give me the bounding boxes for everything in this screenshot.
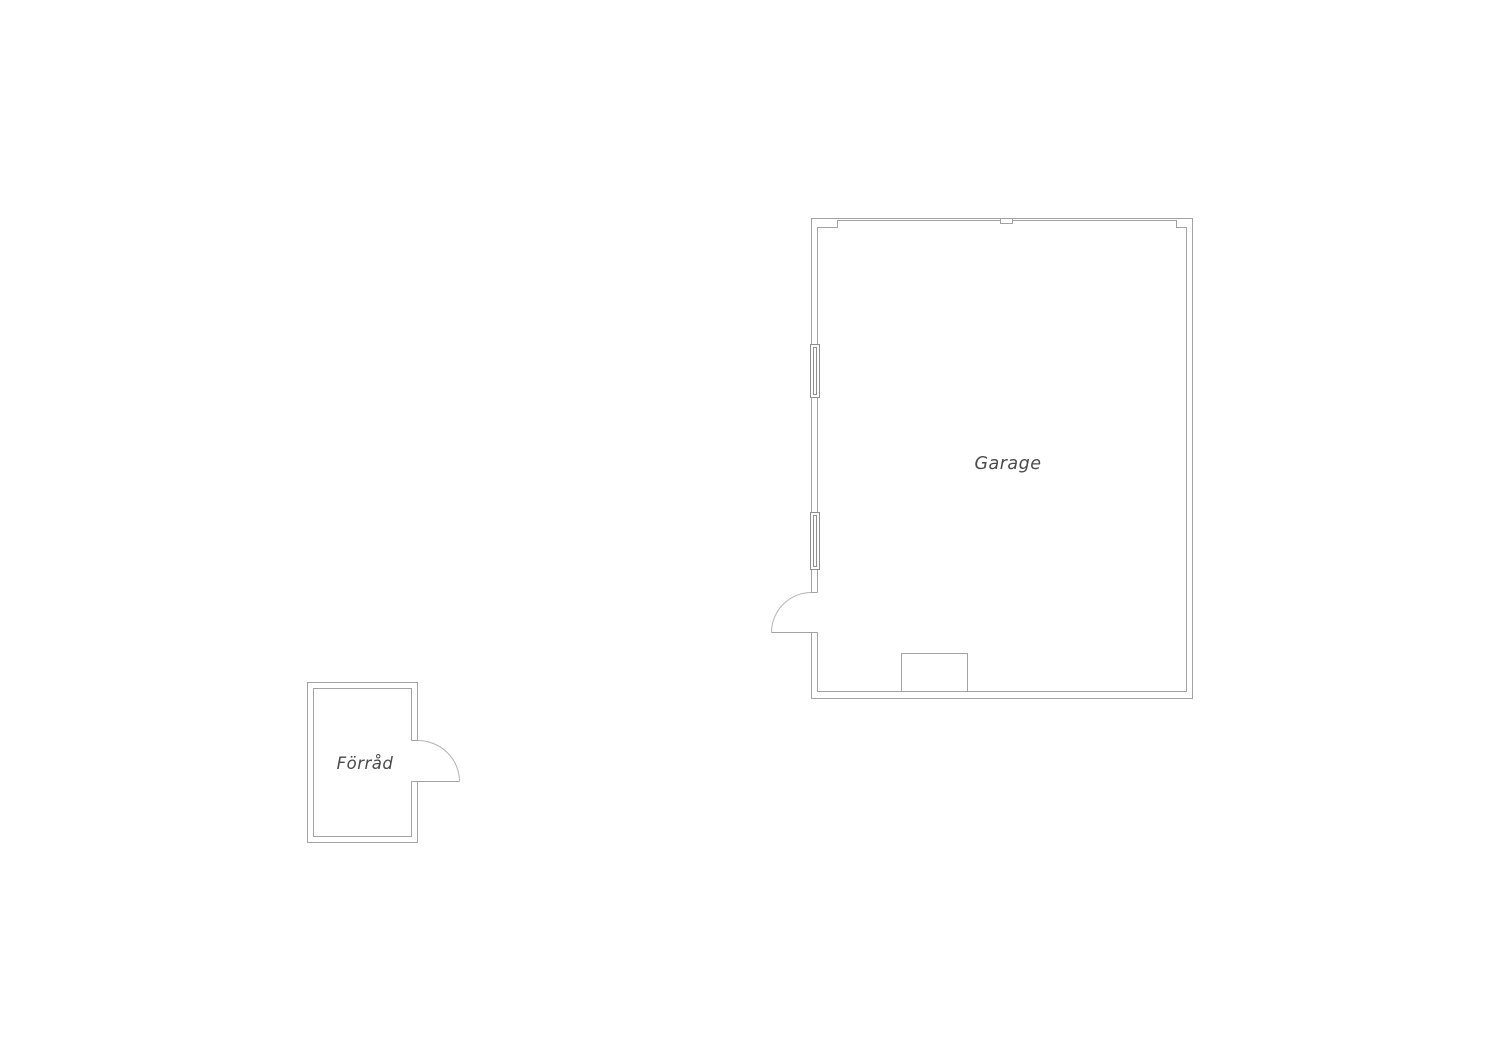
forrad-room: Förråd [308,683,460,843]
garage-top-wall-post [1001,219,1013,224]
forrad-door-swing-arc [418,741,460,782]
garage-window-upper [811,345,820,398]
forrad-room-label: Förråd [337,754,394,773]
garage-room: Garage [772,219,1193,699]
garage-door [772,593,818,633]
garage-room-label: Garage [974,454,1041,474]
floorplan-canvas: Garage Förråd [0,0,1500,1060]
garage-door-swing-arc [772,593,812,633]
forrad-door [412,741,460,782]
garage-window-lower [811,513,820,570]
garage-chimney-block [902,654,968,692]
floorplan-page: Garage Förråd [0,0,1500,1060]
